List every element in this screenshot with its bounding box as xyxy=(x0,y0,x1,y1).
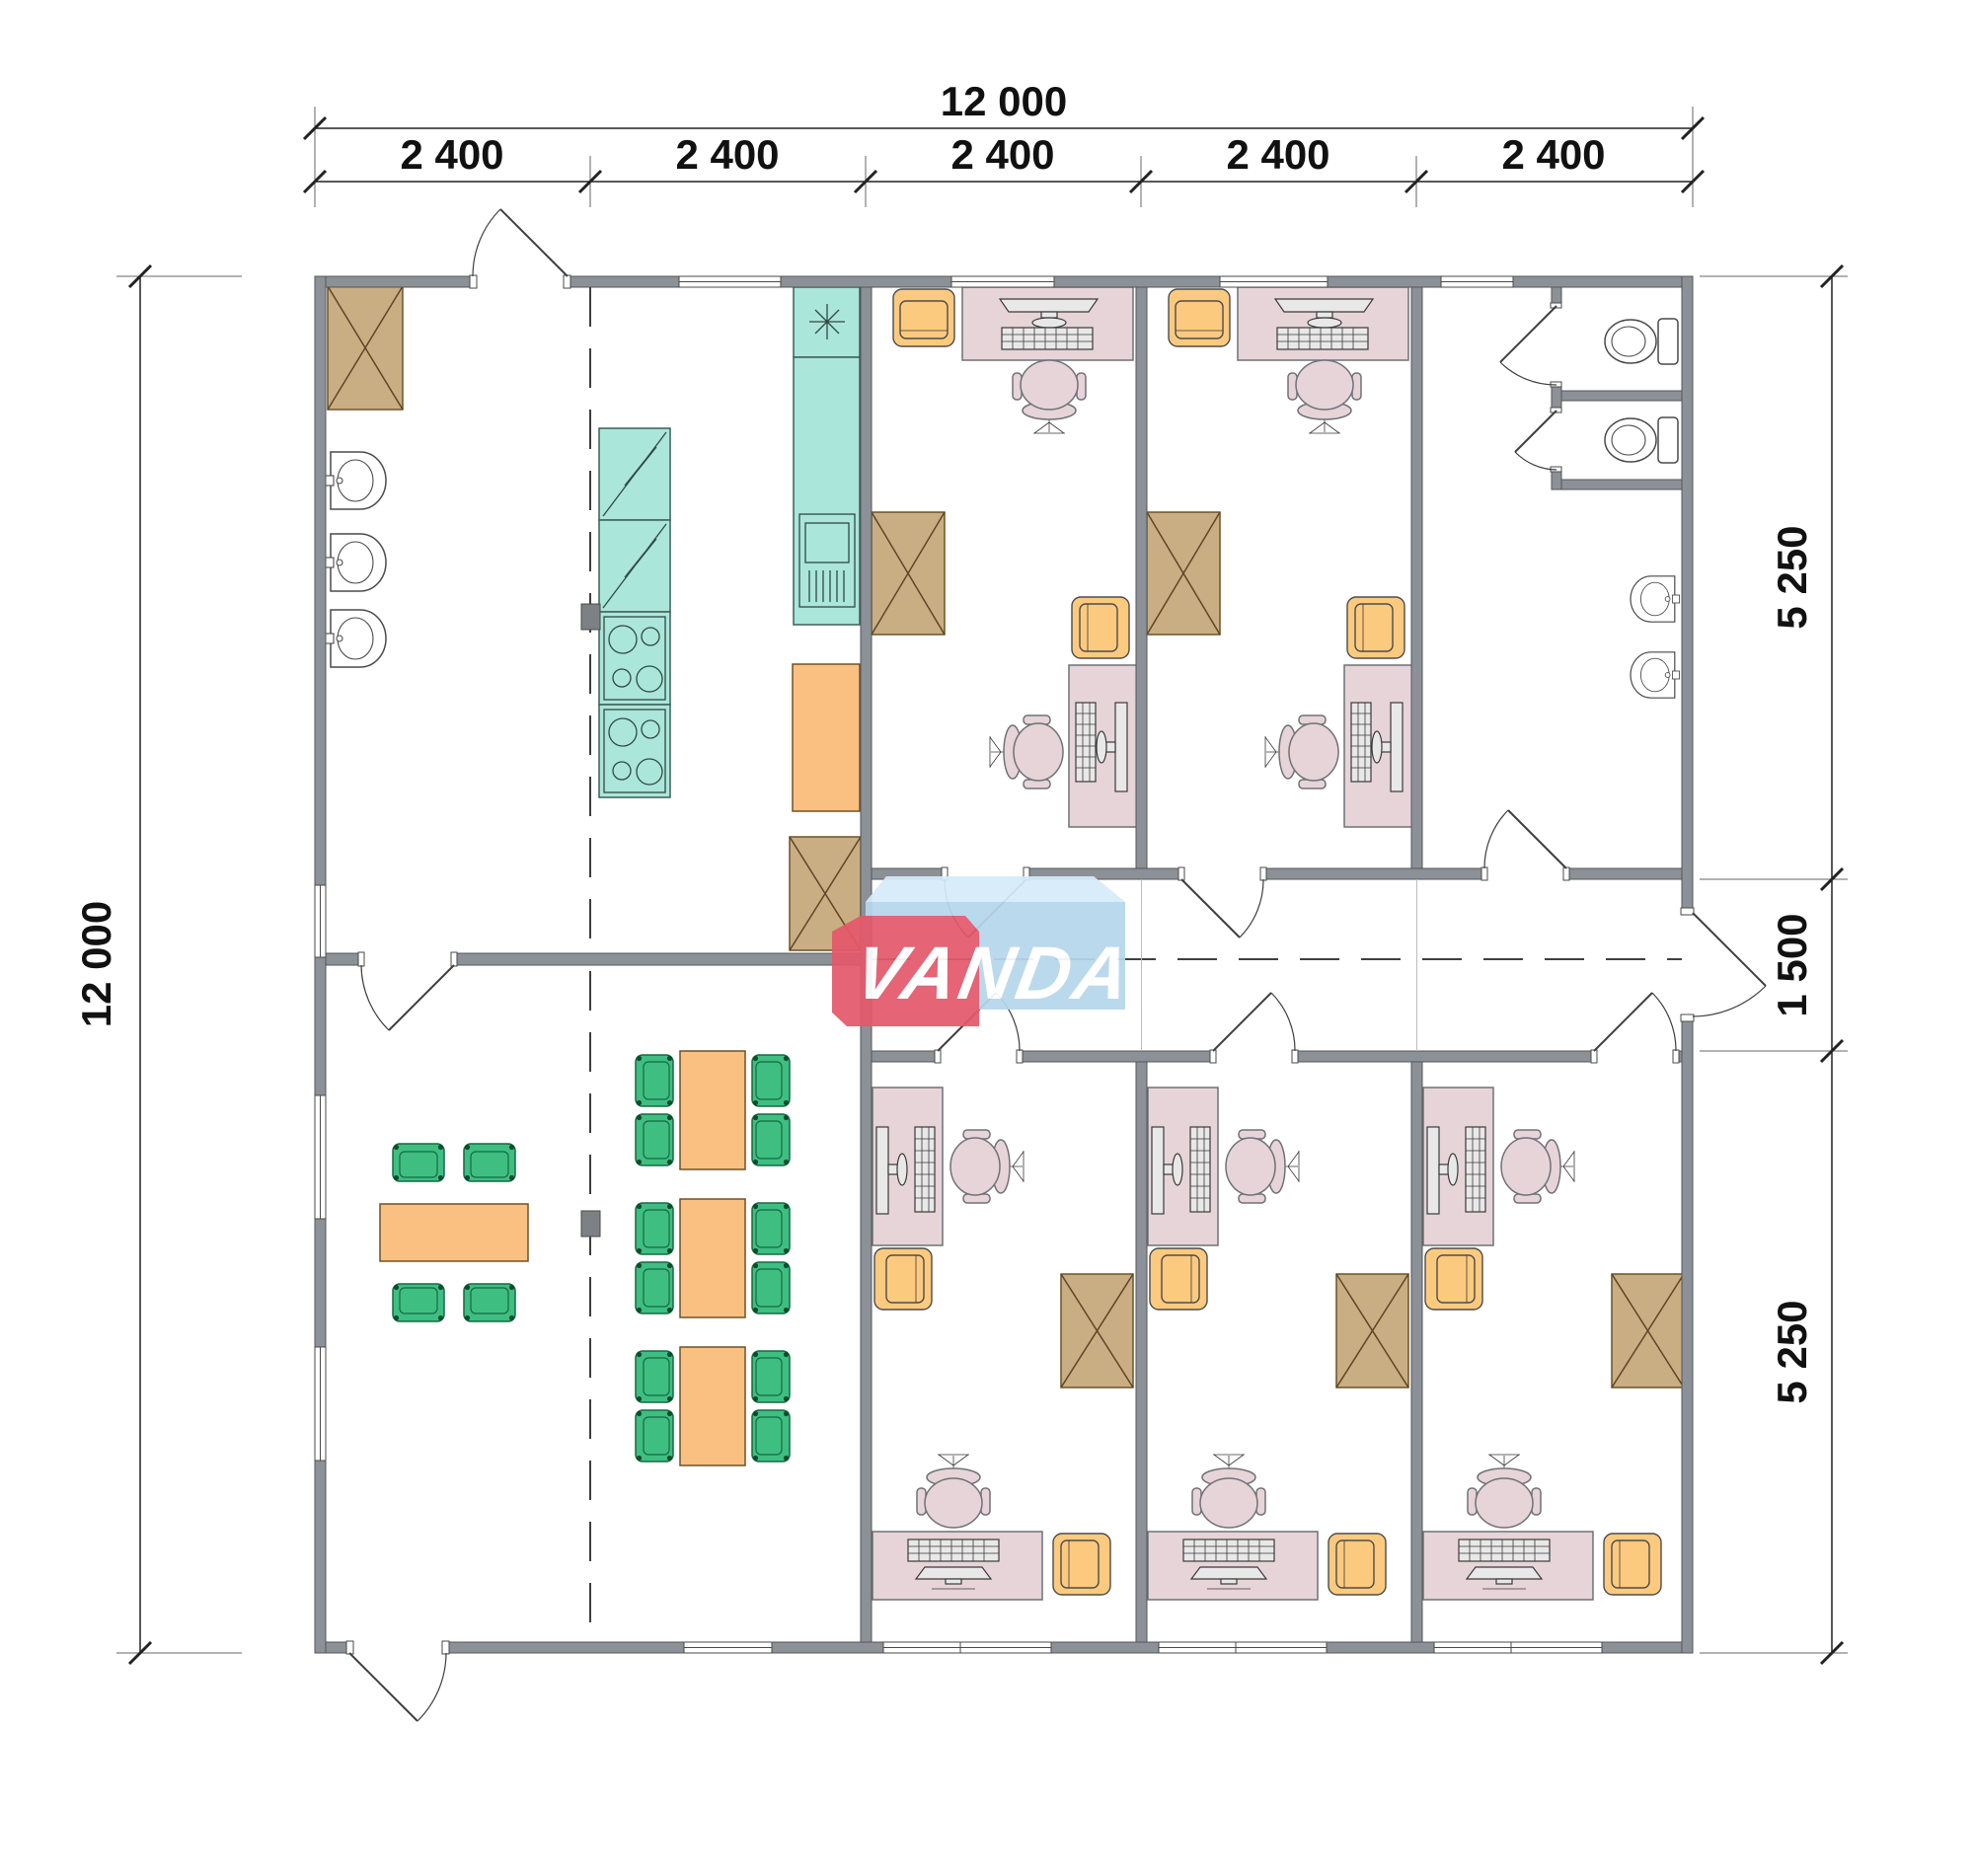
kitchen-table xyxy=(793,664,860,811)
column xyxy=(581,1211,600,1237)
stove xyxy=(599,612,670,705)
dim-top-total: 12 000 xyxy=(941,78,1067,124)
entrance-door xyxy=(473,209,568,276)
dim-segment: 2 400 xyxy=(1226,131,1329,178)
fridge xyxy=(599,428,670,520)
wash-basin xyxy=(325,534,386,591)
wash-basin xyxy=(1631,652,1680,698)
dim-right-segment: 5 250 xyxy=(1769,1300,1815,1403)
stove xyxy=(599,705,670,797)
floor-plan-page: VANDA 12 000 2 400 2 400 2 400 2 400 2 4… xyxy=(0,0,1974,1876)
window xyxy=(315,1095,326,1219)
office-door xyxy=(1181,879,1263,938)
dining-area xyxy=(380,1051,790,1465)
window xyxy=(1220,276,1328,287)
dim-right-segment: 1 500 xyxy=(1769,913,1815,1016)
vanda-logo: VANDA xyxy=(832,876,1139,1026)
window xyxy=(684,1642,772,1653)
window xyxy=(315,885,326,957)
window xyxy=(1441,276,1513,287)
window xyxy=(315,1347,326,1461)
wash-basin xyxy=(325,452,386,509)
toilet xyxy=(1605,319,1678,364)
wash-basin xyxy=(325,610,386,667)
window xyxy=(679,276,781,287)
window xyxy=(1159,1642,1327,1653)
logo-lightblue-shape xyxy=(866,876,1125,902)
office-2 xyxy=(1147,287,1412,827)
dimension-right: 5 250 1 500 5 250 xyxy=(1700,265,1848,1664)
office-door xyxy=(1213,993,1295,1051)
column xyxy=(581,604,600,630)
office-5 xyxy=(1423,1088,1684,1600)
office-3 xyxy=(873,1088,1133,1600)
floor-plan-svg: VANDA 12 000 2 400 2 400 2 400 2 400 2 4… xyxy=(0,0,1974,1876)
kitchen-sink-unit xyxy=(794,287,860,357)
dim-segment: 2 400 xyxy=(400,131,503,178)
office-4 xyxy=(1148,1088,1408,1600)
dimension-top: 12 000 2 400 2 400 2 400 2 400 2 400 xyxy=(304,78,1704,207)
office-1 xyxy=(872,287,1137,827)
window xyxy=(951,276,1054,287)
interior-door xyxy=(361,965,454,1030)
stall-door xyxy=(1515,411,1556,470)
dim-segment: 2 400 xyxy=(950,131,1054,178)
office-door xyxy=(1594,993,1676,1051)
corridor-exit-door xyxy=(1693,913,1766,1016)
wardrobe-cabinet xyxy=(328,286,403,410)
dim-segment: 2 400 xyxy=(675,131,779,178)
dim-left-total: 12 000 xyxy=(73,901,119,1027)
dining-table-set xyxy=(380,1144,528,1321)
dim-segment: 2 400 xyxy=(1501,131,1605,178)
dimension-left: 12 000 xyxy=(73,265,242,1664)
dim-right-segment: 5 250 xyxy=(1769,525,1815,629)
window xyxy=(883,1642,1051,1653)
kitchen-counter xyxy=(794,357,860,625)
window xyxy=(1434,1642,1602,1653)
sanitary-room xyxy=(1605,319,1680,698)
logo-text: VANDA xyxy=(848,933,1138,1015)
washroom-door xyxy=(1484,810,1566,868)
toilet xyxy=(1605,417,1678,463)
entrance-door xyxy=(349,1653,446,1721)
wash-basin xyxy=(1631,576,1680,622)
dining-table xyxy=(380,1204,528,1261)
stall-door xyxy=(1500,306,1556,385)
fridge xyxy=(599,520,670,612)
